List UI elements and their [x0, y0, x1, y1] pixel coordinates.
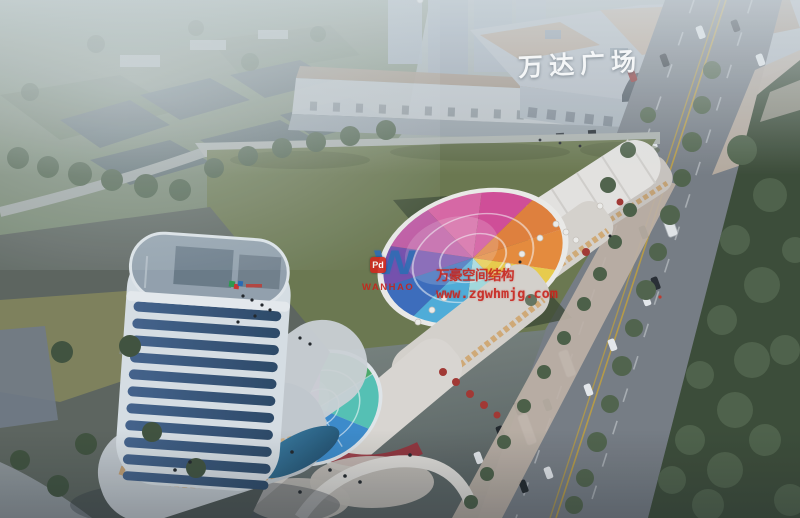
watermark-title: 万豪空间结构 [436, 264, 558, 284]
watermark-text: 万豪空间结构 www.zgwhmjg.com [436, 250, 558, 302]
wanhao-logo-icon: W Pd WANHAO [360, 250, 424, 298]
logo-wordmark: WANHAO [362, 282, 424, 293]
watermark-url: www.zgwhmjg.com [436, 286, 558, 302]
rendering-canvas: 万达广场 W Pd WANHAO 万豪空间结构 www.zgwhmjg.com [0, 0, 800, 518]
watermark: W Pd WANHAO 万豪空间结构 www.zgwhmjg.com [360, 250, 558, 302]
logo-red-badge: Pd [370, 257, 386, 273]
